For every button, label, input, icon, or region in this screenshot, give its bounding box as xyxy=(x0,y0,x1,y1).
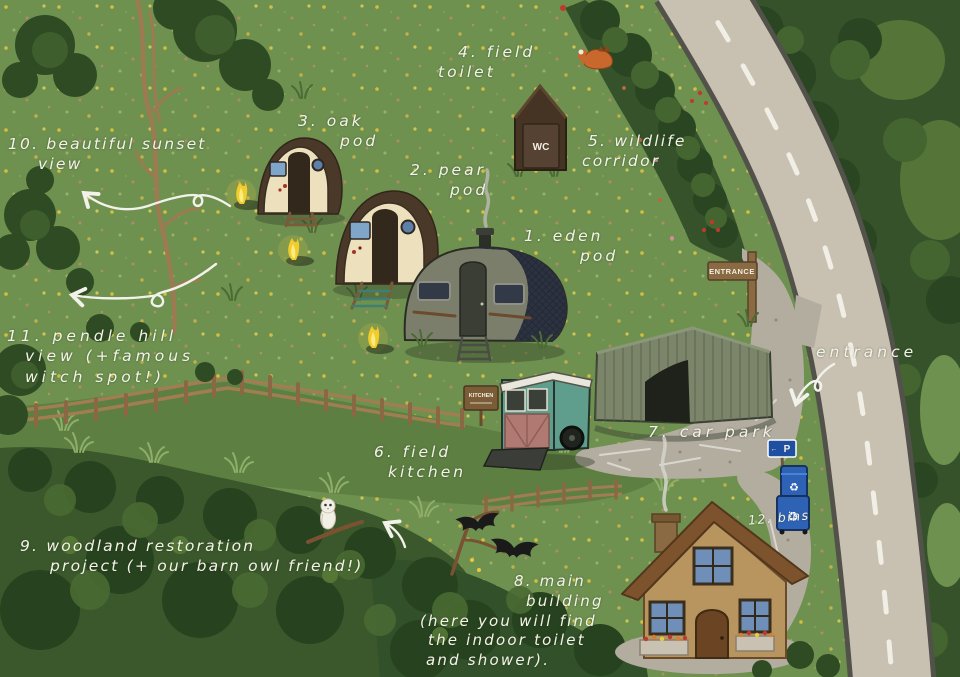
parking-letter: P xyxy=(784,444,791,455)
kitchen-sign-text: KITCHEN xyxy=(469,393,493,399)
cottage-smoke xyxy=(662,438,666,510)
wc-sign: WC xyxy=(533,142,550,153)
parking-arrow-icon: ← xyxy=(771,446,778,453)
campsite-map: WC KITCHEN ENTRANCE ← P xyxy=(0,0,960,677)
bins: ♻ ♻ xyxy=(777,466,809,535)
recycle-icon: ♻ xyxy=(787,510,799,525)
entrance-sign-text: ENTRANCE xyxy=(709,267,755,276)
cottage-door xyxy=(696,610,728,658)
map-illustration: WC KITCHEN ENTRANCE ← P xyxy=(0,0,960,677)
recycle-icon: ♻ xyxy=(789,481,799,494)
